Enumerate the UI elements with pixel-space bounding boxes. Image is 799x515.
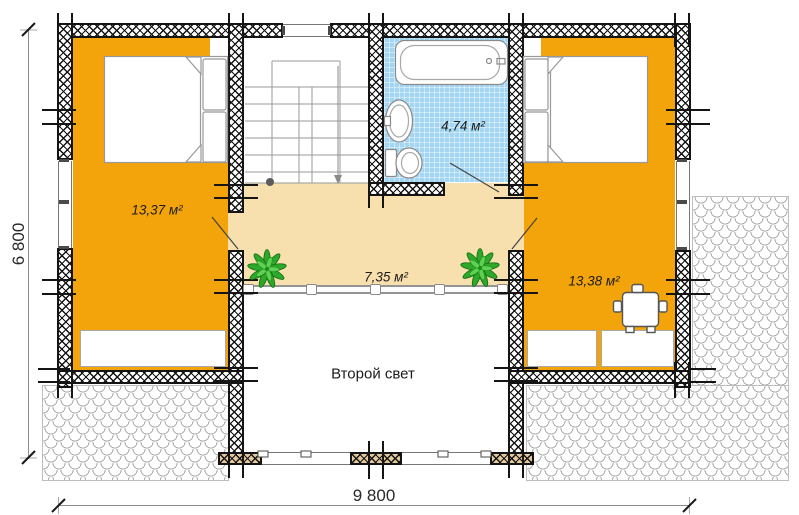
doorway-threshold-left [228, 213, 244, 250]
log-end-mark [38, 368, 70, 383]
dimension-tick [683, 499, 696, 512]
nightstand-left [210, 38, 228, 57]
low-zone-left-room [80, 330, 226, 367]
log-end-mark [368, 13, 384, 47]
log-end-mark [368, 441, 384, 479]
dimension-label-depth: 6 800 [9, 223, 29, 266]
log-end-mark [42, 109, 76, 125]
stairs-icon [245, 61, 368, 183]
nightstand-right [524, 38, 541, 58]
log-end-mark [214, 184, 258, 199]
roof-tiles-bottom-left [42, 385, 229, 481]
railing-post [306, 284, 317, 295]
log-end-mark [666, 279, 710, 295]
log-end-mark [214, 367, 258, 382]
wall-stairs-bathroom [368, 23, 384, 196]
log-end-mark [42, 279, 76, 295]
window-left-wall [58, 161, 72, 248]
window-right-wall [676, 161, 690, 250]
log-end-mark [228, 442, 244, 478]
railing-post [370, 284, 381, 295]
area-label-bedroom-left: 13,37 м² [131, 203, 182, 218]
dimension-tick [22, 23, 35, 36]
wall-top-left-segment [57, 23, 283, 38]
log-end-mark [214, 279, 258, 294]
wall-mid-right-upper [508, 23, 524, 196]
railing-post [434, 284, 445, 295]
stair-arrow-icon [266, 66, 342, 186]
bedroom-right-floor [524, 37, 675, 370]
floor-plan: 13,37 м² 4,74 м² 13,38 м² 7,35 м² Второй… [0, 0, 799, 515]
low-zone-right-room-1 [527, 330, 597, 367]
log-end-mark [674, 13, 690, 47]
log-end-mark [494, 184, 538, 199]
log-end-mark [57, 13, 73, 47]
window-bottom-right [402, 452, 490, 465]
log-end-mark [494, 279, 538, 294]
log-end-mark [228, 13, 244, 47]
roof-tiles-bottom-right [526, 385, 789, 481]
log-end-mark [494, 367, 538, 382]
area-label-bathroom: 4,74 м² [441, 119, 485, 134]
log-end-mark [508, 442, 524, 478]
log-end-mark [508, 13, 524, 47]
area-label-hall: 7,35 м² [364, 270, 408, 285]
window-top-stairs [283, 24, 330, 37]
window-bottom-left [262, 452, 350, 465]
dimension-tick [52, 499, 65, 512]
dimension-tick [22, 451, 35, 464]
log-end-mark [688, 368, 716, 383]
low-zone-right-room-2 [601, 330, 674, 367]
dimension-label-width: 9 800 [353, 486, 396, 506]
second-light-label: Второй свет [331, 366, 415, 383]
bathroom-floor [384, 37, 508, 182]
log-end-mark [666, 109, 710, 125]
area-label-bedroom-right: 13,38 м² [568, 274, 619, 289]
log-end-mark [368, 172, 384, 208]
doorway-threshold-right [508, 196, 524, 250]
